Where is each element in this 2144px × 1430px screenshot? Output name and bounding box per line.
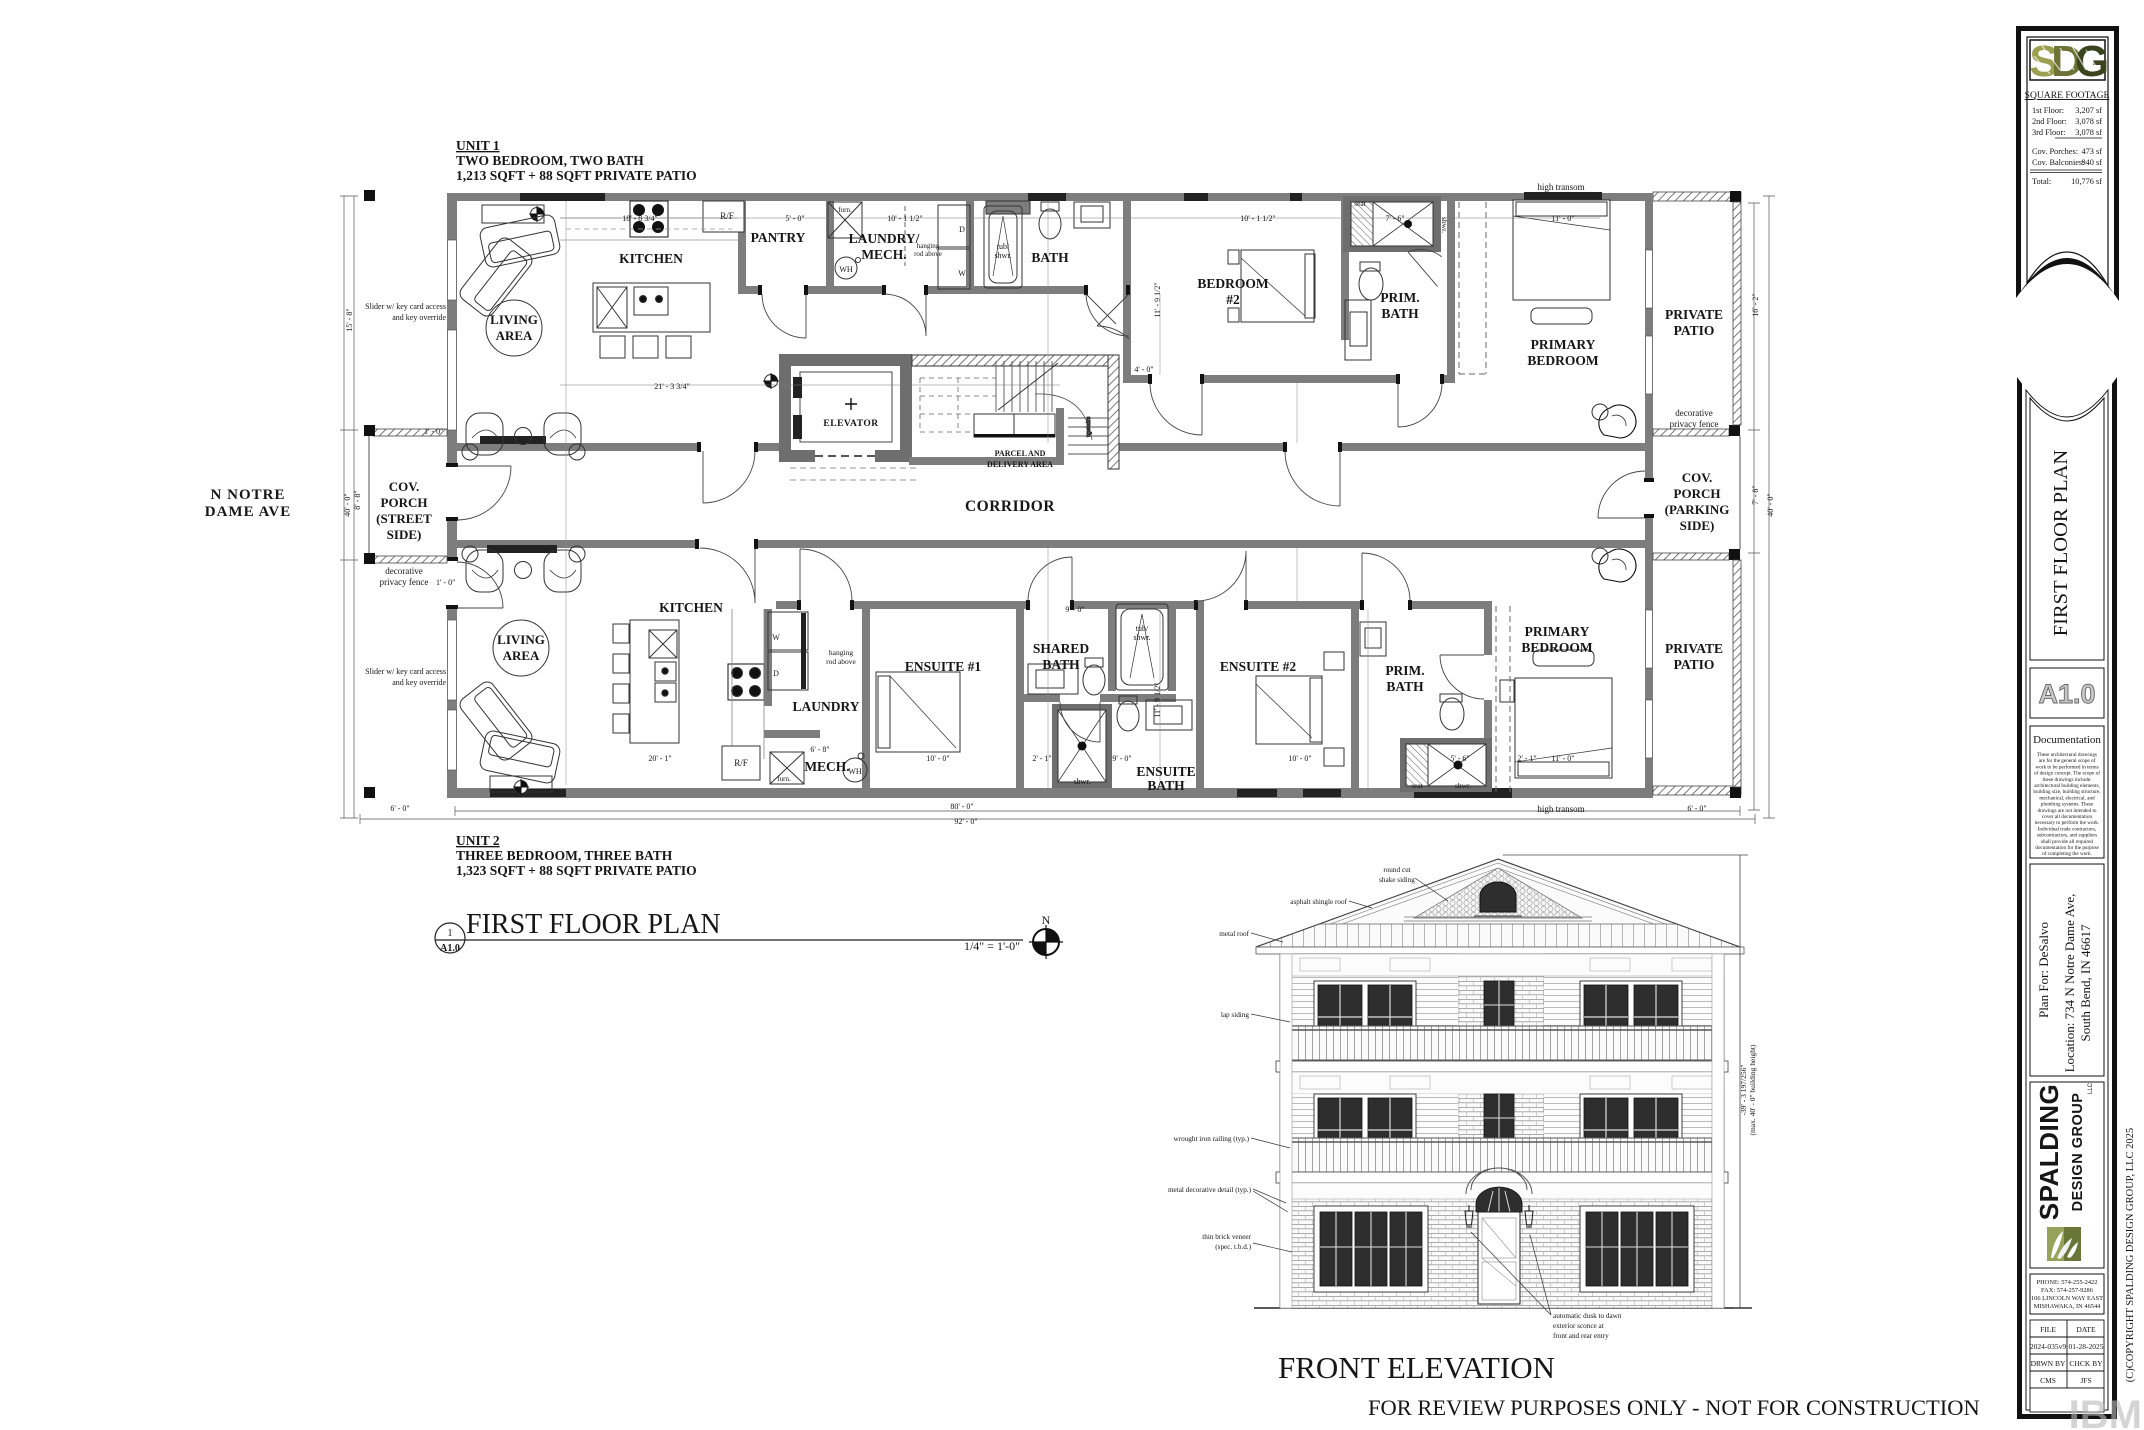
svg-text:11' - 9 1/2": 11' - 9 1/2" [1153, 282, 1162, 317]
svg-text:lap siding: lap siding [1221, 1011, 1250, 1019]
svg-text:11' - 9 1/2": 11' - 9 1/2" [1153, 682, 1162, 717]
svg-text:building size, building struct: building size, building structure, [2033, 789, 2100, 795]
svg-text:5' - 6": 5' - 6" [1450, 754, 1469, 763]
svg-text:Slider w/ key card access: Slider w/ key card access [365, 302, 446, 311]
svg-text:DAME AVE: DAME AVE [205, 504, 292, 520]
svg-text:106 LINCOLN WAY EAST: 106 LINCOLN WAY EAST [2031, 1295, 2103, 1302]
svg-text:Cov. Porches:: Cov. Porches: [2032, 147, 2078, 156]
svg-text:MECH.: MECH. [861, 247, 906, 262]
svg-text:1st Floor:: 1st Floor: [2032, 106, 2064, 115]
svg-text:WH: WH [839, 265, 853, 274]
svg-text:subcontractors, and suppliers: subcontractors, and suppliers [2037, 833, 2097, 839]
svg-text:40' - 0": 40' - 0" [1766, 493, 1775, 516]
svg-text:shwr.: shwr. [994, 251, 1011, 260]
svg-text:80' - 0": 80' - 0" [950, 802, 973, 811]
svg-text:6' - 8": 6' - 8" [810, 745, 829, 754]
svg-text:BEDROOM: BEDROOM [1197, 276, 1269, 291]
svg-text:11' - 0": 11' - 0" [1551, 754, 1574, 763]
svg-text:PRIVATE: PRIVATE [1665, 641, 1723, 656]
svg-text:2' - 1": 2' - 1" [1032, 754, 1051, 763]
svg-text:MECH.: MECH. [804, 759, 849, 774]
svg-text:(max. 40' - 0" building height: (max. 40' - 0" building height) [1748, 1044, 1757, 1136]
svg-text:R/F: R/F [734, 758, 748, 768]
svg-text:DRWN BY: DRWN BY [2031, 1359, 2066, 1368]
svg-text:UNIT 2: UNIT 2 [456, 833, 500, 848]
svg-text:FAX: 574-257-9286: FAX: 574-257-9286 [2041, 1287, 2093, 1294]
svg-text:plumbing systems. These: plumbing systems. These [2041, 802, 2094, 808]
svg-text:SIDE): SIDE) [387, 527, 422, 542]
svg-text:11' - 0": 11' - 0" [1551, 214, 1574, 223]
svg-text:thin brick veneer: thin brick veneer [1202, 1233, 1251, 1241]
svg-text:LAUNDRY: LAUNDRY [792, 699, 859, 714]
svg-text:W: W [772, 633, 780, 642]
svg-text:#2: #2 [1226, 292, 1240, 307]
svg-text:CHCK BY: CHCK BY [2069, 1359, 2103, 1368]
svg-text:CMS: CMS [2040, 1376, 2056, 1385]
svg-text:KITCHEN: KITCHEN [659, 600, 723, 615]
svg-text:of design concept. The scope o: of design concept. The scope of [2034, 770, 2100, 777]
svg-text:21' - 3 3/4": 21' - 3 3/4" [654, 382, 690, 391]
svg-text:shwr.: shwr. [1073, 777, 1090, 786]
svg-text:PRIVATE: PRIVATE [1665, 307, 1723, 322]
svg-text:LIVING: LIVING [497, 632, 545, 647]
svg-text:round cut: round cut [1383, 866, 1410, 874]
svg-text:16' - 2": 16' - 2" [1751, 293, 1760, 316]
svg-text:seat: seat [1411, 781, 1424, 790]
svg-text:PANTRY: PANTRY [751, 230, 806, 245]
svg-text:9' - 0": 9' - 0" [1112, 754, 1131, 763]
svg-text:LIVING: LIVING [490, 312, 538, 327]
svg-text:D: D [959, 225, 965, 234]
svg-text:10' - 1 1/2": 10' - 1 1/2" [887, 214, 923, 223]
svg-text:shwr.: shwr. [1455, 781, 1471, 790]
svg-text:BATH: BATH [1381, 306, 1419, 321]
svg-text:9' - 0": 9' - 0" [1065, 605, 1084, 614]
svg-text:SIDE): SIDE) [1680, 518, 1715, 533]
svg-text:PHONE: 574-255-2422: PHONE: 574-255-2422 [2037, 1279, 2098, 1286]
svg-text:Plan For: DeSalvo: Plan For: DeSalvo [2036, 922, 2051, 1018]
svg-text:SQUARE FOOTAGE: SQUARE FOOTAGE [2025, 90, 2110, 101]
svg-text:these drawings include:: these drawings include: [2043, 777, 2093, 783]
svg-text:940 sf: 940 sf [2081, 158, 2102, 167]
svg-text:Individual trade contractors,: Individual trade contractors, [2038, 826, 2097, 832]
svg-text:and key override: and key override [392, 678, 446, 687]
svg-text:BATH: BATH [1386, 679, 1424, 694]
svg-text:(PARKING: (PARKING [1665, 502, 1730, 517]
svg-text:3,078 sf: 3,078 sf [2075, 117, 2102, 126]
svg-text:5' - 0": 5' - 0" [785, 214, 804, 223]
svg-text:PATIO: PATIO [1674, 657, 1715, 672]
svg-text:15' - 8": 15' - 8" [345, 308, 354, 331]
svg-text:hanging: hanging [917, 242, 940, 250]
svg-text:shwr.: shwr. [1133, 633, 1150, 642]
svg-text:seat: seat [1354, 199, 1367, 208]
svg-text:10' - 0": 10' - 0" [926, 754, 949, 763]
svg-text:decorative: decorative [1675, 408, 1712, 418]
svg-text:wrought iron railing (typ.): wrought iron railing (typ.) [1174, 1135, 1250, 1143]
svg-text:7' - 8": 7' - 8" [1751, 485, 1760, 504]
svg-text:drawings are not intended to: drawings are not intended to [2037, 808, 2096, 814]
svg-text:FIRST FLOOR PLAN: FIRST FLOOR PLAN [466, 909, 721, 940]
svg-text:2' - 1": 2' - 1" [1517, 754, 1536, 763]
svg-text:privacy fence: privacy fence [1670, 419, 1719, 429]
svg-text:R/F: R/F [720, 211, 734, 221]
svg-text:ENSUITE: ENSUITE [1136, 764, 1195, 779]
svg-text:1' - 0": 1' - 0" [424, 427, 443, 436]
svg-text:PATIO: PATIO [1674, 323, 1715, 338]
svg-text:IBM: IBM [2069, 1393, 2142, 1430]
svg-text:10,776 sf: 10,776 sf [2071, 177, 2102, 186]
svg-text:2nd Floor:: 2nd Floor: [2032, 117, 2067, 126]
svg-text:tub/: tub/ [997, 242, 1010, 251]
svg-text:shake siding: shake siding [1379, 876, 1415, 884]
svg-text:documentation for the purpose: documentation for the purpose [2035, 844, 2099, 851]
svg-text:1,213 SQFT + 88 SQFT PRIVATE P: 1,213 SQFT + 88 SQFT PRIVATE PATIO [456, 168, 697, 183]
svg-text:PORCH: PORCH [1674, 486, 1721, 501]
svg-text:BEDROOM: BEDROOM [1527, 353, 1599, 368]
svg-text:DELIVERY AREA: DELIVERY AREA [987, 460, 1053, 469]
svg-text:ELEVATOR: ELEVATOR [823, 419, 878, 429]
svg-text:PARCEL AND: PARCEL AND [995, 449, 1046, 458]
svg-text:asphalt shingle roof: asphalt shingle roof [1290, 898, 1347, 906]
svg-text:front and rear entry: front and rear entry [1553, 1332, 1609, 1340]
svg-text:privacy fence: privacy fence [380, 577, 429, 587]
svg-text:metal roof: metal roof [1219, 930, 1249, 938]
svg-text:10' - 0": 10' - 0" [1288, 754, 1311, 763]
svg-text:473 sf: 473 sf [2081, 147, 2102, 156]
svg-text:THREE BEDROOM, THREE BATH: THREE BEDROOM, THREE BATH [456, 848, 673, 863]
svg-text:SPALDING: SPALDING [2034, 1084, 2064, 1220]
svg-text:10' - 1 1/2": 10' - 1 1/2" [1240, 214, 1276, 223]
svg-text:-39' - 3 197/256": -39' - 3 197/256" [1739, 1065, 1748, 1116]
svg-text:8' - 8": 8' - 8" [353, 490, 362, 509]
svg-text:20' - 1": 20' - 1" [648, 754, 671, 763]
svg-text:TWO BEDROOM, TWO BATH: TWO BEDROOM, TWO BATH [456, 153, 644, 168]
svg-text:40' - 0": 40' - 0" [343, 493, 352, 516]
svg-text:6' - 0": 6' - 0" [1687, 804, 1706, 813]
svg-text:COV.: COV. [1682, 470, 1712, 485]
svg-text:01-28-2025: 01-28-2025 [2069, 1342, 2104, 1351]
svg-text:1' - 0": 1' - 0" [436, 578, 455, 587]
svg-text:Location: 734 N Notre Dame Ave: Location: 734 N Notre Dame Ave, [2062, 894, 2077, 1073]
svg-text:decorative: decorative [385, 566, 422, 576]
svg-text:architectural building element: architectural building elements, [2034, 783, 2100, 789]
svg-text:These architectural drawings: These architectural drawings [2037, 752, 2097, 758]
svg-text:PORCH: PORCH [381, 495, 428, 510]
svg-text:7' - 6": 7' - 6" [1385, 214, 1404, 223]
svg-text:Documentation: Documentation [2033, 734, 2101, 746]
svg-text:BEDROOM: BEDROOM [1521, 640, 1593, 655]
svg-text:mechanical, electrical, and: mechanical, electrical, and [2039, 795, 2095, 801]
svg-text:G: G [2075, 37, 2109, 86]
svg-text:South Bend, IN 46617: South Bend, IN 46617 [2078, 924, 2093, 1042]
svg-text:shwr.: shwr. [1440, 217, 1449, 233]
svg-text:(spec. t.b.d.): (spec. t.b.d.) [1215, 1243, 1251, 1251]
svg-text:FIRST FLOOR PLAN: FIRST FLOOR PLAN [2050, 450, 2072, 637]
svg-text:KITCHEN: KITCHEN [619, 251, 683, 266]
svg-text:ENSUITE #2: ENSUITE #2 [1220, 659, 1296, 674]
svg-text:(C)COPYRIGHT SPALDING DESIGN G: (C)COPYRIGHT SPALDING DESIGN GROUP, LLC … [2125, 1128, 2136, 1382]
svg-text:ENSUITE #1: ENSUITE #1 [905, 659, 981, 674]
svg-text:DATE: DATE [2076, 1325, 2096, 1334]
svg-text:SHARED: SHARED [1033, 641, 1090, 656]
svg-text:CORRIDOR: CORRIDOR [965, 498, 1055, 515]
svg-text:PRIM.: PRIM. [1380, 290, 1419, 305]
svg-text:FOR REVIEW PURPOSES ONLY - NOT: FOR REVIEW PURPOSES ONLY - NOT FOR CONST… [1368, 1395, 1980, 1420]
svg-text:4' - 0": 4' - 0" [1134, 365, 1153, 374]
svg-text:rod above: rod above [914, 250, 942, 258]
svg-text:BATH: BATH [1042, 657, 1080, 672]
svg-text:furn.: furn. [777, 775, 791, 783]
svg-text:PRIMARY: PRIMARY [1525, 624, 1590, 639]
svg-text:LLC: LLC [2088, 1082, 2094, 1094]
svg-text:N: N [1042, 913, 1051, 927]
svg-text:exterior sconce at: exterior sconce at [1553, 1322, 1604, 1330]
svg-text:upstairs: upstairs [1085, 416, 1092, 437]
svg-text:shall provide all required: shall provide all required [2041, 839, 2093, 845]
svg-text:Slider w/ key card access: Slider w/ key card access [365, 667, 446, 676]
svg-text:6' - 0": 6' - 0" [390, 804, 409, 813]
svg-text:necessary to perform the work.: necessary to perform the work. [2035, 819, 2099, 826]
svg-text:N NOTRE: N NOTRE [211, 487, 286, 503]
svg-text:automatic dusk to dawn: automatic dusk to dawn [1553, 1312, 1622, 1320]
svg-text:PRIM.: PRIM. [1385, 663, 1424, 678]
svg-text:(STREET: (STREET [376, 511, 432, 526]
svg-text:and key override: and key override [392, 313, 446, 322]
svg-text:1: 1 [448, 928, 453, 939]
svg-text:hanging: hanging [829, 648, 853, 657]
svg-text:1/4" = 1'-0": 1/4" = 1'-0" [964, 939, 1020, 953]
svg-text:rod above: rod above [826, 657, 856, 666]
svg-text:PRIMARY: PRIMARY [1531, 337, 1596, 352]
svg-text:FRONT ELEVATION: FRONT ELEVATION [1278, 1350, 1555, 1385]
svg-text:3rd Floor:: 3rd Floor: [2032, 128, 2065, 137]
svg-text:Total:: Total: [2032, 177, 2051, 186]
svg-text:A1.0: A1.0 [440, 943, 460, 954]
svg-text:cover all documentation: cover all documentation [2042, 814, 2093, 820]
svg-text:metal decorative detail (typ.): metal decorative detail (typ.) [1168, 1186, 1252, 1194]
svg-text:BATH: BATH [1031, 250, 1069, 265]
svg-text:1,323 SQFT + 88 SQFT PRIVATE P: 1,323 SQFT + 88 SQFT PRIVATE PATIO [456, 863, 697, 878]
svg-text:BATH: BATH [1147, 778, 1185, 793]
svg-text:18' - 8 3/4": 18' - 8 3/4" [622, 214, 658, 223]
svg-text:MISHAWAKA, IN 46544: MISHAWAKA, IN 46544 [2034, 1303, 2102, 1310]
svg-text:UNIT 1: UNIT 1 [456, 138, 500, 153]
svg-text:A1.0: A1.0 [2038, 679, 2095, 709]
svg-text:furn.: furn. [838, 206, 852, 214]
svg-text:are for the general scope of: are for the general scope of [2039, 757, 2096, 764]
svg-text:3,207 sf: 3,207 sf [2075, 106, 2102, 115]
svg-text:high transom: high transom [1537, 182, 1584, 192]
svg-text:work to be performed in terms: work to be performed in terms [2035, 763, 2098, 770]
svg-text:2024-035v9: 2024-035v9 [2030, 1342, 2066, 1351]
svg-text:DESIGN GROUP: DESIGN GROUP [2070, 1093, 2086, 1212]
svg-text:Cov. Balconies:: Cov. Balconies: [2032, 158, 2084, 167]
svg-text:W: W [958, 269, 966, 278]
svg-text:LAUNDRY/: LAUNDRY/ [849, 231, 920, 246]
svg-text:COV.: COV. [389, 479, 419, 494]
svg-text:AREA: AREA [503, 648, 540, 663]
svg-text:JFS: JFS [2080, 1376, 2091, 1385]
svg-text:AREA: AREA [496, 328, 533, 343]
svg-text:3,078 sf: 3,078 sf [2075, 128, 2102, 137]
svg-text:FILE: FILE [2040, 1325, 2056, 1334]
svg-text:D: D [773, 669, 779, 678]
svg-text:high transom: high transom [1537, 804, 1584, 814]
svg-text:92' - 0": 92' - 0" [954, 817, 977, 826]
svg-text:WH: WH [848, 767, 862, 776]
svg-text:tub/: tub/ [1136, 624, 1149, 633]
svg-text:of completing the work.: of completing the work. [2042, 850, 2092, 857]
